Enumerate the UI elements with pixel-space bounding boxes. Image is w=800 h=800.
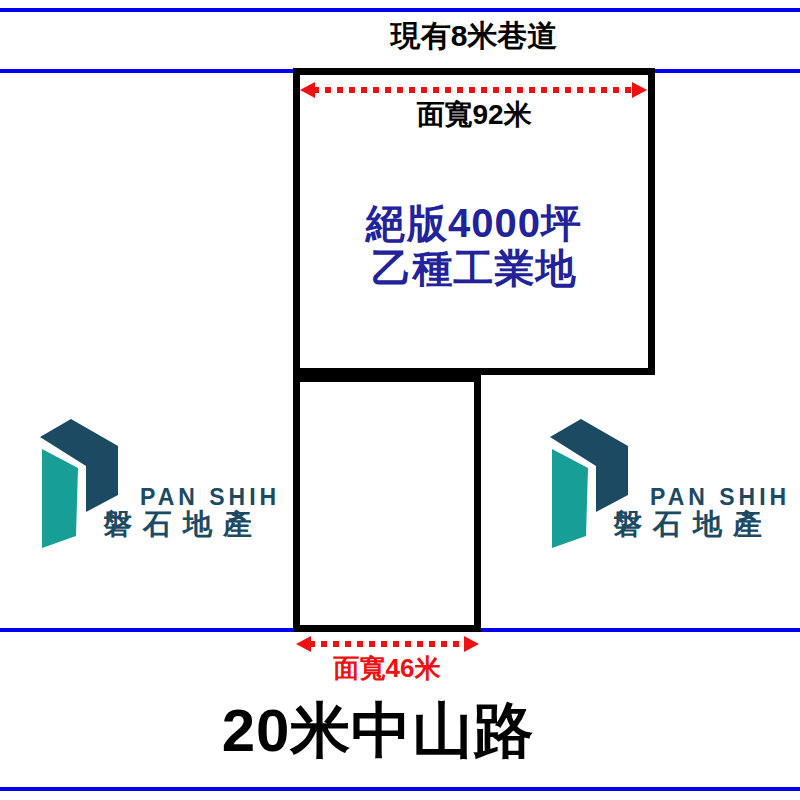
arrowhead-right-icon [632, 82, 647, 98]
front-parcel-width-label: 面寬46米 [293, 653, 481, 683]
brand-name-zh: 磐石地產 [613, 505, 773, 545]
top-road-outer-line [0, 8, 800, 12]
dotted-arrow-shaft [313, 87, 634, 93]
bottom-road-label: 20米中山路 [0, 697, 756, 765]
bottom-road-outer-line [0, 787, 800, 791]
brand-name-zh: 磐石地產 [103, 505, 263, 545]
parcel-headline-line1: 絕版4000坪 [293, 201, 655, 246]
width-arrow-46m [296, 636, 479, 652]
parcel-headline: 絕版4000坪 乙種工業地 [293, 201, 655, 291]
parcel-headline-line2: 乙種工業地 [293, 246, 655, 291]
top-road-label: 現有8米巷道 [293, 19, 655, 53]
dotted-arrow-shaft [309, 641, 466, 647]
arrowhead-right-icon [464, 636, 479, 652]
main-parcel-width-label: 面寬92米 [293, 99, 655, 131]
pan-shih-logo-right: PAN SHIH 磐石地產 [545, 415, 780, 560]
front-parcel-outline [293, 375, 481, 632]
land-parcel-diagram: 現有8米巷道 面寬92米 絕版4000坪 乙種工業地 面寬46米 20米中山路 … [0, 0, 800, 800]
pan-shih-logo-left: PAN SHIH 磐石地產 [35, 415, 270, 560]
width-arrow-92m [300, 82, 647, 98]
